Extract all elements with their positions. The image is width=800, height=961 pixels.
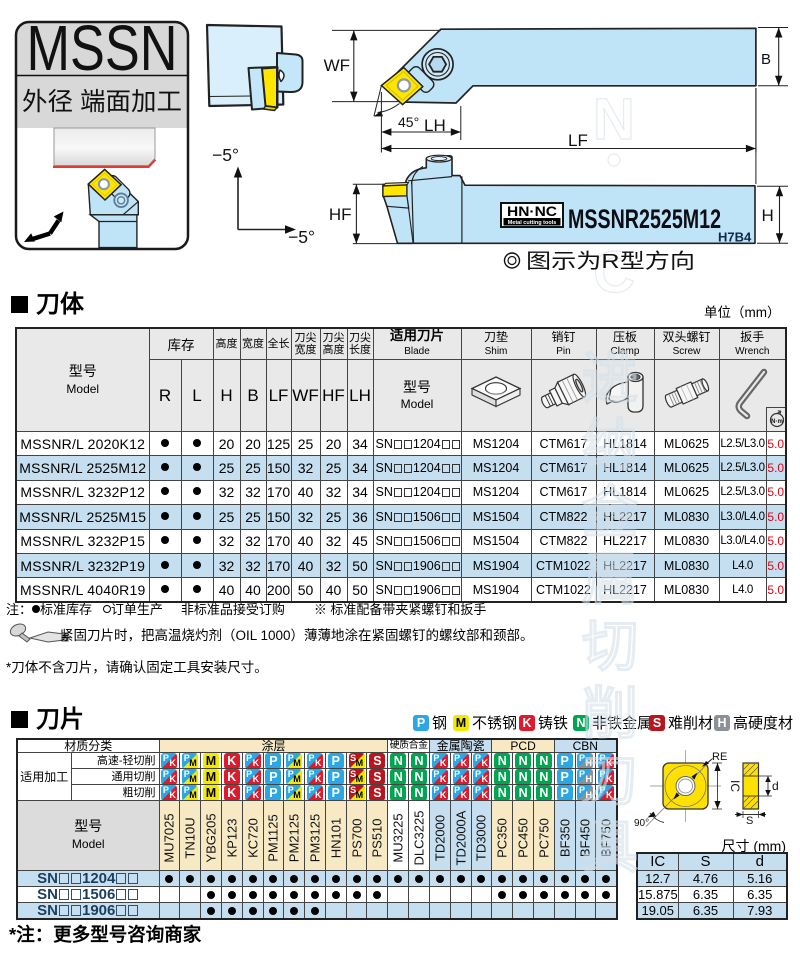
svg-text:H: H: [593, 26, 635, 91]
svg-text:S: S: [746, 815, 753, 827]
svg-text:HN·NC: HN·NC: [507, 203, 557, 219]
svg-text:N: N: [593, 87, 635, 152]
svg-text:N: N: [593, 180, 635, 245]
svg-text:切: 切: [582, 615, 638, 678]
svg-text:H7B4: H7B4: [718, 230, 752, 245]
svg-text:外径 端面加工: 外径 端面加工: [22, 88, 182, 116]
svg-text:MSSN: MSSN: [27, 12, 178, 84]
svg-text:Metal cutting tools: Metal cutting tools: [508, 220, 557, 226]
svg-text:C: C: [593, 240, 635, 305]
svg-text:−5°: −5°: [288, 227, 315, 247]
svg-text:图示为R型方向: 图示为R型方向: [526, 250, 695, 273]
svg-text:LF: LF: [568, 131, 588, 150]
svg-text:N·m: N·m: [771, 419, 783, 425]
svg-text:HF: HF: [329, 205, 352, 224]
svg-text:B: B: [761, 51, 771, 68]
svg-text:IC: IC: [728, 780, 742, 792]
svg-text:−5°: −5°: [212, 145, 239, 165]
svg-text:LH: LH: [424, 116, 446, 135]
svg-text:RE: RE: [712, 751, 727, 763]
svg-text:WF: WF: [324, 56, 350, 75]
svg-text:45°: 45°: [398, 114, 419, 130]
svg-text:d: d: [772, 779, 779, 793]
svg-text:90°: 90°: [634, 818, 649, 829]
svg-text:H: H: [762, 206, 774, 225]
svg-text:MSSNR2525M12: MSSNR2525M12: [568, 204, 721, 234]
